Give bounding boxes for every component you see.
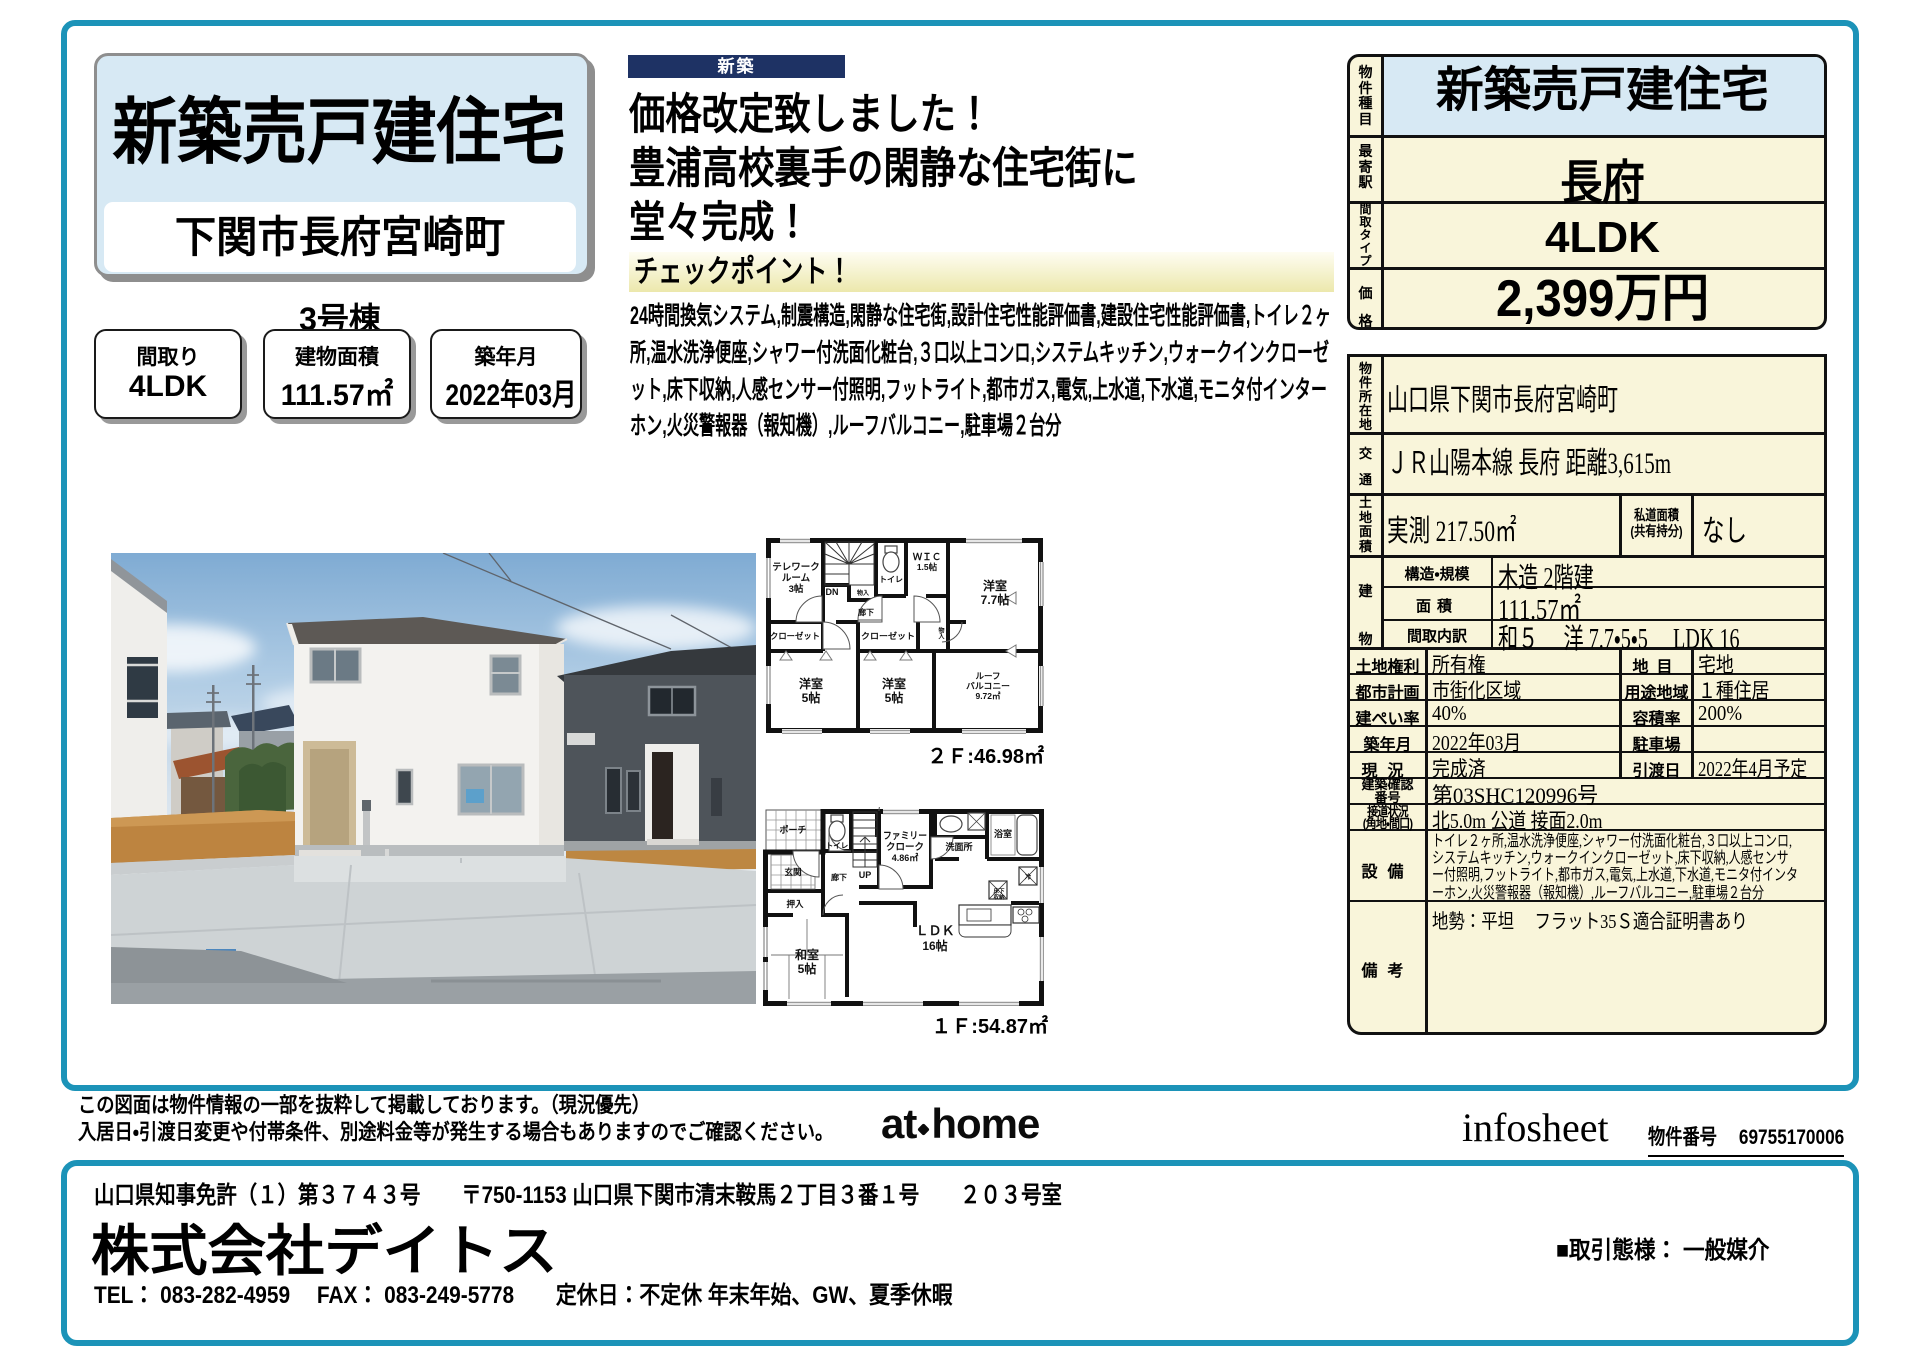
svg-text:洗面所: 洗面所 <box>945 841 972 852</box>
svg-text:ファミリー: ファミリー <box>883 831 927 842</box>
svg-text:洋室: 洋室 <box>983 578 1007 593</box>
svg-text:7.7帖: 7.7帖 <box>981 592 1010 607</box>
svg-text:テレワーク: テレワーク <box>772 562 820 573</box>
svg-text:1.5帖: 1.5帖 <box>917 562 938 572</box>
svg-text:洋室: 洋室 <box>882 676 906 691</box>
svg-text:16帖: 16帖 <box>922 938 947 953</box>
svg-text:5帖: 5帖 <box>885 690 904 705</box>
svg-text:収納: 収納 <box>993 893 1005 901</box>
svg-text:押入: 押入 <box>786 899 804 909</box>
svg-text:ルーム: ルーム <box>782 573 811 584</box>
svg-text:洋室: 洋室 <box>799 676 823 691</box>
svg-text:廊下: 廊下 <box>831 872 847 882</box>
svg-text:物入: 物入 <box>857 589 869 597</box>
svg-text:3帖: 3帖 <box>789 583 804 595</box>
svg-text:トイレ: トイレ <box>879 575 903 584</box>
svg-text:5帖: 5帖 <box>798 961 817 976</box>
svg-text:4.86㎡: 4.86㎡ <box>892 852 919 863</box>
svg-text:トイレ: トイレ <box>826 841 849 850</box>
svg-text:クローク: クローク <box>886 842 924 853</box>
svg-text:UP: UP <box>859 870 872 880</box>
svg-text:浴室: 浴室 <box>994 828 1012 839</box>
svg-text:9.72㎡: 9.72㎡ <box>975 691 1001 701</box>
svg-text:和室: 和室 <box>794 947 819 962</box>
svg-text:DN: DN <box>826 587 839 597</box>
svg-text:クローゼット: クローゼット <box>770 631 820 641</box>
svg-text:ＬＤＫ: ＬＤＫ <box>915 923 954 938</box>
svg-text:廊下: 廊下 <box>858 607 874 617</box>
svg-text:ルーフ: ルーフ <box>976 671 1001 681</box>
svg-text:冷: 冷 <box>1025 873 1032 881</box>
svg-text:床下: 床下 <box>993 887 1005 895</box>
svg-text:ポーチ: ポーチ <box>779 824 806 835</box>
svg-text:クローゼット: クローゼット <box>861 631 915 641</box>
svg-text:5帖: 5帖 <box>802 690 821 705</box>
svg-text:バルコニー: バルコニー <box>966 681 1010 691</box>
svg-text:玄関: 玄関 <box>784 867 801 877</box>
